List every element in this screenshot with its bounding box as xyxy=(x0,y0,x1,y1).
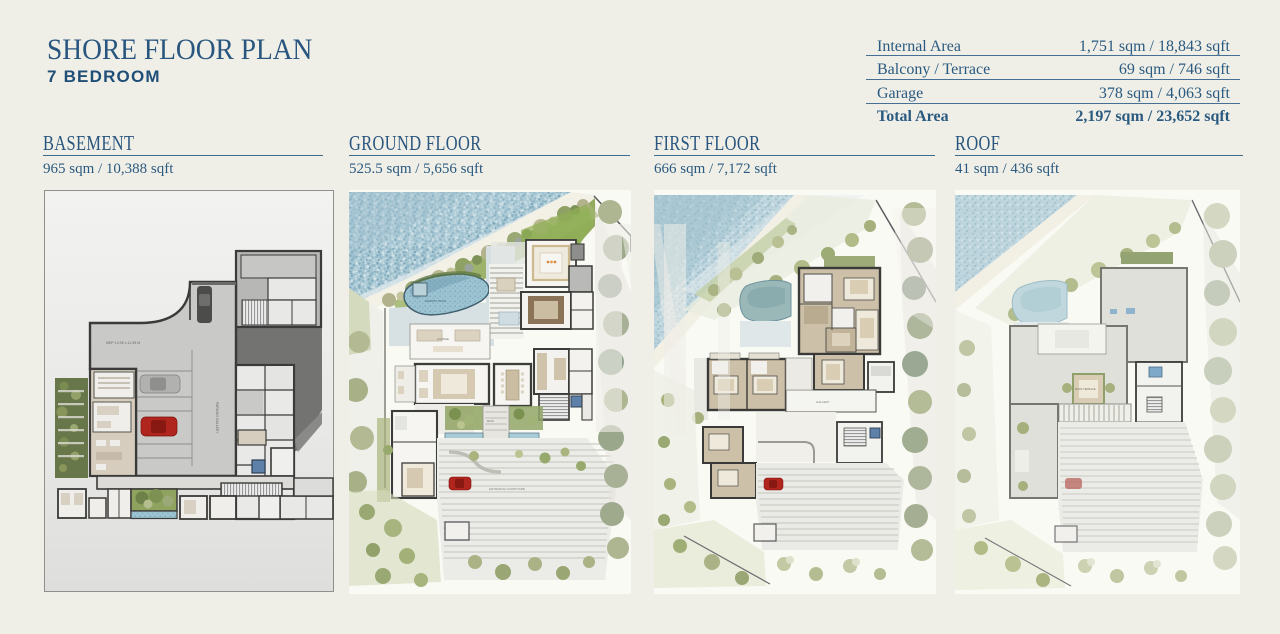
svg-text:MEP 13.05 x 11.95 M: MEP 13.05 x 11.95 M xyxy=(106,341,140,345)
svg-text:LOUNGE: LOUNGE xyxy=(437,337,449,341)
svg-text:INFINITY POOL: INFINITY POOL xyxy=(425,299,447,303)
svg-text:ROOF TERRACE: ROOF TERRACE xyxy=(1075,387,1096,391)
svg-text:MAIN: MAIN xyxy=(487,419,494,423)
svg-text:ENTRANCE COURTYARD: ENTRANCE COURTYARD xyxy=(489,487,526,491)
svg-text:PARKING GALLERY: PARKING GALLERY xyxy=(215,402,219,434)
svg-text:GALLERY: GALLERY xyxy=(816,400,830,404)
